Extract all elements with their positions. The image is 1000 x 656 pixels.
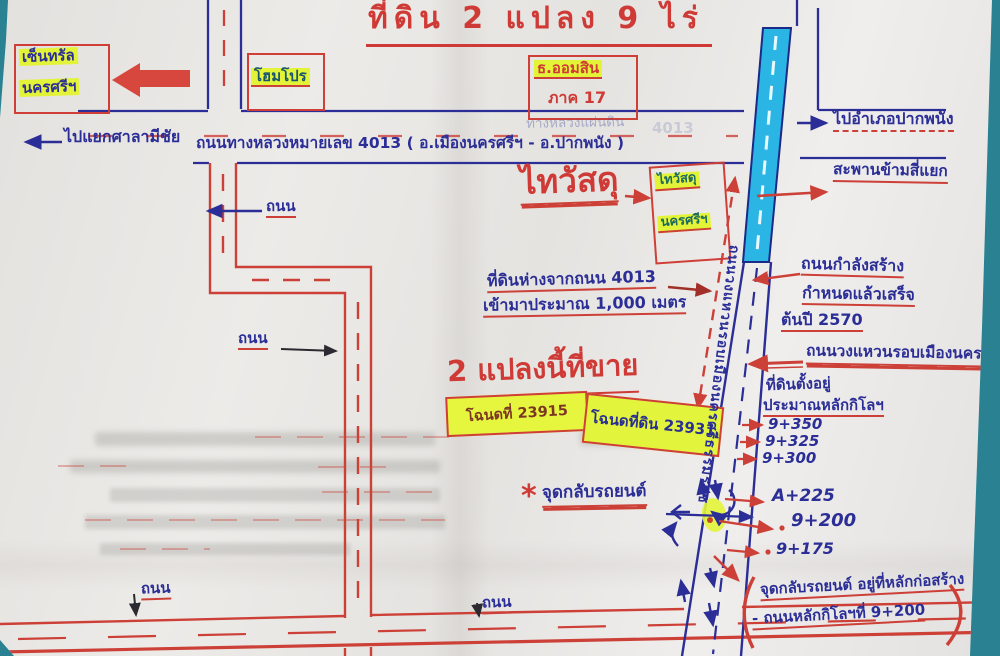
road-label-bottom-mid: ถนน [482, 593, 512, 614]
highway-faded-label: ทางหลวงแผ่นดิน [526, 115, 625, 132]
map-title-underline [366, 44, 712, 47]
big-left-arrow [112, 63, 190, 97]
map-title: ที่ดิน 2 แปลง 9 ไร่ [368, 2, 704, 37]
top-street-lines [208, 0, 241, 109]
location-note-line1: ที่ดินตั้งอยู่ [766, 375, 831, 394]
paper-sheet: ที่ดิน 2 แปลง 9 ไร่ เซ็นทรัล นครศรีฯ โฮม… [0, 0, 1000, 656]
deed1-box: โฉนดที่ 23915 [445, 391, 589, 437]
hand-drawn-land-map: ที่ดิน 2 แปลง 9 ไร่ เซ็นทรัล นครศรีฯ โฮม… [0, 0, 1000, 656]
red-side-road-lines [210, 163, 371, 656]
central-label-line2: นครศรีฯ [19, 78, 80, 97]
central-landmark-box: เซ็นทรัล นครศรีฯ [14, 44, 110, 114]
uturn-spot-dot [707, 517, 713, 523]
bridge-label: สะพานข้ามสี่แยก [833, 161, 948, 184]
road-label-west: ถนน [266, 198, 296, 218]
km-marker-a-225: A+225 [772, 487, 835, 507]
to-pak-phanang-label: ไปอำเภอปากพนัง [833, 110, 954, 132]
km-marker-9-325: 9+325 [765, 433, 819, 450]
thaiwatsadu-box: ไทวัสดุ นครศรีฯ [649, 161, 732, 264]
deed2-label: โฉนดที่ดิน 23931 [590, 410, 717, 440]
construction-note-line3: ต้นปี 2570 [781, 311, 863, 332]
thaiwatsadu-box-line2: นครศรีฯ [657, 213, 711, 234]
bank-name-label: ธ.ออมสิน [534, 60, 602, 79]
to-sala-michai-label: ไปแยกศาลามีชัย [64, 128, 180, 146]
ring-road-label: ถนนวงแหวนรอบเมืองนคร [806, 342, 982, 367]
sale-headline: 2 แปลงนี้ที่ขาย [446, 349, 638, 389]
uturn-label: จุดกลับรถยนต์ [542, 482, 647, 507]
central-label-line1: เซ็นทรัล [19, 47, 78, 66]
km-marker-9-350: 9+350 [768, 416, 822, 433]
construction-note-line1: ถนนกำลังสร้าง [801, 255, 905, 279]
km-marker-9-200: 9+200 [791, 511, 856, 532]
erased-red-dashes [58, 437, 455, 549]
thaiwatsadu-label: ไทวัสดุ [519, 160, 619, 205]
deed1-label: โฉนดที่ 23915 [466, 403, 569, 426]
bank-landmark-box: ธ.ออมสิน ภาค 17 [528, 55, 638, 120]
uturn-star-icon: * [521, 480, 537, 515]
highway-4013-label: ถนนทางหลวงหมายเลข 4013 ( อ.เมืองนครศรีฯ … [196, 135, 624, 153]
highway-faded-number: 4013 [652, 120, 694, 137]
distance-note-line1: ที่ดินห่างจากถนน 4013 [487, 268, 656, 294]
homepro-landmark-box: โฮมโปร [247, 53, 325, 111]
road-label-bottom-left: ถนน [141, 579, 171, 600]
distance-note-line2: เข้ามาประมาณ 1,000 เมตร [483, 293, 687, 318]
km-marker-9-300: 9+300 [762, 450, 816, 467]
thaiwatsadu-box-line1: ไทวัสดุ [654, 171, 700, 191]
bank-region-label: ภาค 17 [548, 89, 606, 107]
road-label-mid: ถนน [238, 330, 268, 350]
construction-note-line2: กำหนดแล้วเสร็จ [802, 284, 915, 307]
km-marker-9-175: 9+175 [776, 540, 834, 558]
homepro-label: โฮมโปร [251, 68, 310, 87]
